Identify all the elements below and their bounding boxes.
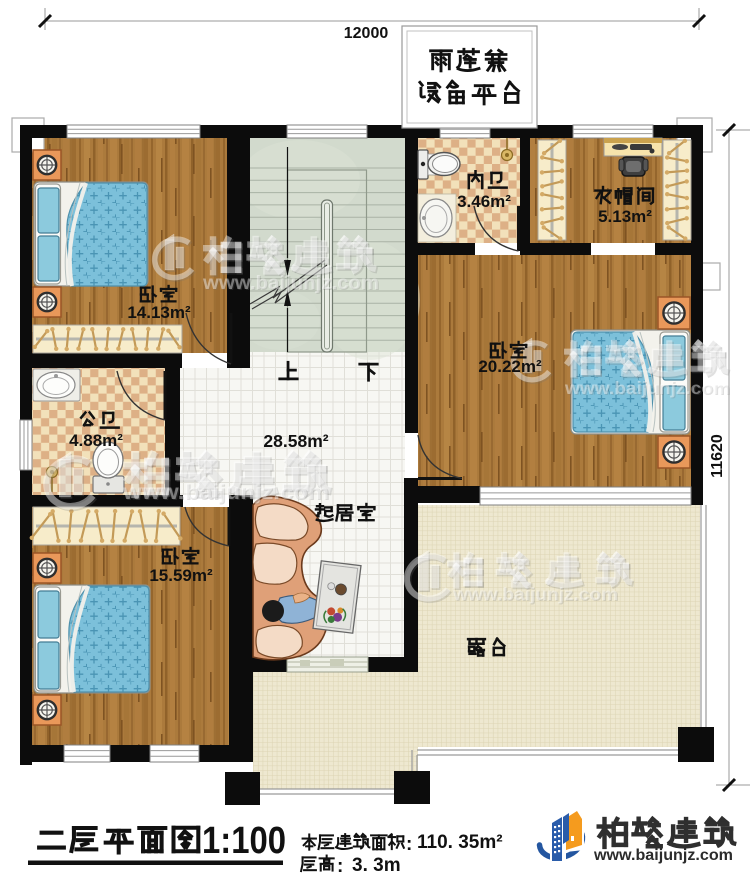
svg-text:28.58m²: 28.58m² [263,431,328,451]
svg-text:1:100: 1:100 [202,820,286,862]
svg-text:3. 3m: 3. 3m [352,855,401,876]
svg-text:14.13m²: 14.13m² [127,303,191,322]
svg-text:11620: 11620 [709,434,726,478]
svg-text::: : [406,834,412,855]
svg-text:12000: 12000 [344,25,389,42]
svg-text:20.22m²: 20.22m² [478,357,542,376]
svg-text:www.baijunjz.com: www.baijunjz.com [593,847,733,864]
svg-text:4.88m²: 4.88m² [69,431,123,450]
svg-text:3.46m²: 3.46m² [457,192,511,211]
svg-text:110. 35m²: 110. 35m² [417,832,503,853]
svg-text:www.baijunjz.com: www.baijunjz.com [202,273,379,294]
svg-text:www.baijunjz.com: www.baijunjz.com [564,378,730,398]
svg-text:www.baijunjz.com: www.baijunjz.com [122,481,329,504]
svg-text:www.baijunjz.com: www.baijunjz.com [452,584,618,604]
svg-text:15.59m²: 15.59m² [149,566,213,585]
svg-text:5.13m²: 5.13m² [598,207,652,226]
svg-text::: : [337,856,343,877]
